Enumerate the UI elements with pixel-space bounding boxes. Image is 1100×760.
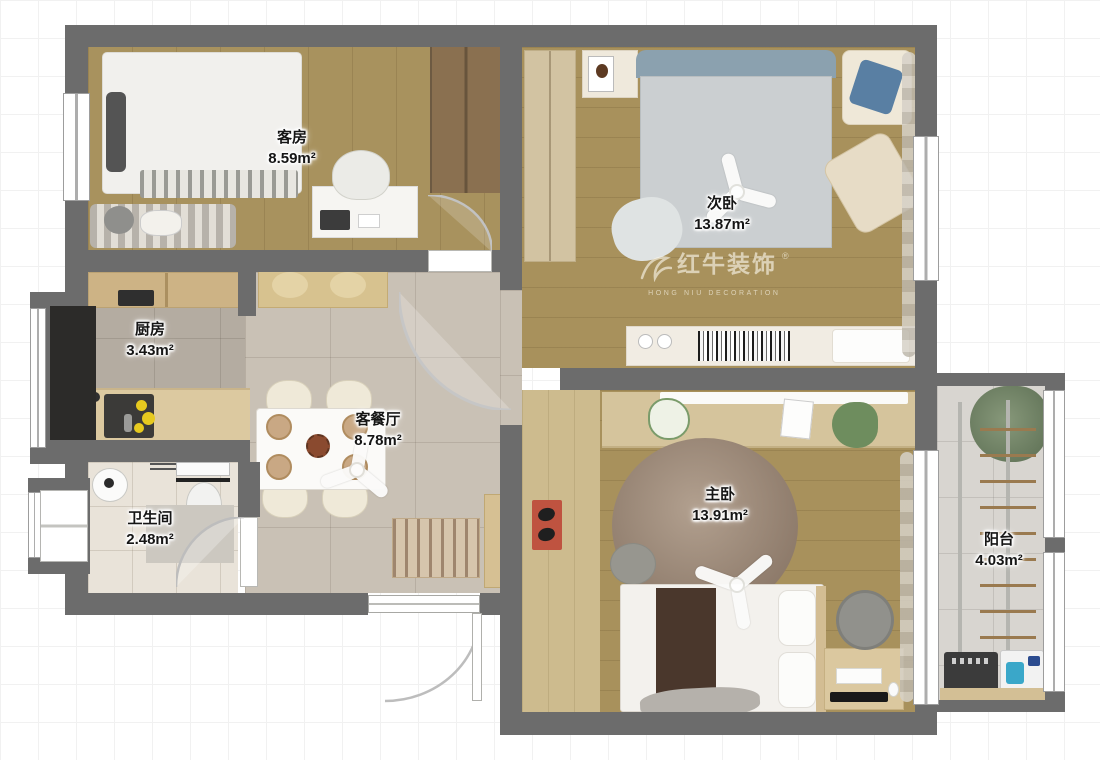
guest-desk-printer	[320, 210, 350, 230]
entrance-door-opening	[368, 595, 480, 613]
washer-laundry-blue	[1006, 662, 1024, 684]
wall-center-lower	[500, 425, 522, 735]
entrance-door-arc	[385, 613, 482, 703]
room-area-living-dining: 8.78m²	[354, 432, 402, 449]
washer-detergent	[1028, 656, 1040, 666]
room-area-balcony: 4.03m²	[975, 552, 1023, 569]
room-label-kitchen: 厨房 3.43m²	[126, 318, 174, 359]
dresser-photo-frame	[780, 399, 814, 440]
washer-controls	[952, 658, 990, 664]
desk-monitor	[830, 692, 888, 702]
sink-flower-1	[136, 400, 147, 411]
room-label-bathroom: 卫生间 2.48m²	[126, 507, 174, 548]
room-label-guest: 客房 8.59m²	[268, 126, 316, 167]
room-name-living-dining: 客餐厅	[355, 408, 400, 429]
master-entry-corridor-floor	[522, 390, 600, 712]
guest-door-arc	[428, 195, 492, 252]
guest-bed-pillow	[106, 92, 126, 172]
room-area-guest: 8.59m²	[268, 150, 316, 167]
room-label-living-dining: 客餐厅 8.78m²	[354, 408, 402, 449]
room-name-master: 主卧	[705, 483, 735, 504]
room-label-second-bedroom: 次卧 13.87m²	[694, 192, 750, 233]
room-name-balcony: 阳台	[984, 528, 1014, 549]
shelf-cup-1	[638, 334, 653, 349]
guest-bench-pillow-white	[140, 210, 182, 236]
entry-rug	[392, 518, 480, 578]
drying-rack-pole-1	[958, 402, 962, 657]
dresser-plant	[832, 402, 878, 448]
registered-mark-icon: ®	[782, 251, 789, 261]
shelf-books	[698, 331, 790, 361]
magazine-photo	[596, 64, 608, 78]
second-bedroom-window	[913, 136, 939, 281]
shelf-tray	[832, 329, 910, 363]
balcony-wall-bottom	[937, 700, 1065, 712]
shelf-cup-2	[657, 334, 672, 349]
sink-flower-3	[134, 423, 144, 433]
room-area-master: 13.91m²	[692, 507, 748, 524]
bathroom-door-arc	[176, 517, 244, 587]
brand-watermark: 红牛装饰 ® HONG NIU DECORATION	[640, 254, 789, 297]
shower-control-icon	[104, 478, 114, 488]
room-name-bathroom: 卫生间	[127, 507, 172, 528]
room-area-second-bedroom: 13.87m²	[694, 216, 750, 233]
guest-rug	[140, 170, 298, 198]
guest-door-opening	[428, 250, 492, 272]
second-bedroom-wardrobe	[524, 50, 576, 262]
wall-guestroom-bottom-right	[492, 250, 522, 272]
brand-name: 红牛装饰	[677, 254, 777, 277]
wall-kitchen-stub	[238, 272, 256, 316]
dresser-flowers	[648, 398, 690, 440]
master-curtain	[900, 452, 914, 702]
sink-flower-2	[142, 412, 155, 425]
sink-faucet	[124, 414, 132, 432]
cabinet-sheen-2	[330, 272, 366, 298]
master-balcony-window	[913, 450, 939, 705]
desk-keyboard	[836, 668, 882, 684]
wall-bottom-left-b	[480, 593, 506, 615]
dining-plate-1	[266, 414, 292, 440]
desk-mouse	[888, 682, 899, 697]
brand-logo-icon	[640, 254, 672, 287]
range-hood	[118, 290, 154, 306]
kitchen-bay-window	[30, 308, 46, 448]
guest-bench-pillow-gray	[104, 206, 134, 234]
kitchen-upper-cabinet	[88, 272, 245, 308]
floorplan-canvas: 客房 8.59m² 次卧 13.87m² 厨房 3.43m² 客餐厅 8.78m…	[0, 0, 1100, 760]
room-label-master: 主卧 13.91m²	[692, 483, 748, 524]
brand-subtitle: HONG NIU DECORATION	[648, 290, 781, 297]
toilet-tank	[176, 462, 230, 476]
room-area-kitchen: 3.43m²	[126, 342, 174, 359]
guest-chair	[332, 150, 390, 200]
balcony-window-upper	[1043, 390, 1065, 538]
master-pillow-1	[778, 590, 816, 646]
master-pillow-2	[778, 652, 816, 708]
ceiling-fan-icon-master	[692, 540, 782, 630]
entrance-door-leaf	[472, 613, 482, 701]
room-name-kitchen: 厨房	[135, 318, 165, 339]
guest-room-window	[63, 93, 90, 201]
room-name-second-bedroom: 次卧	[707, 192, 737, 213]
guest-desk-paper	[358, 214, 380, 228]
hall-door-arc	[399, 292, 511, 410]
room-label-balcony: 阳台 4.03m²	[975, 528, 1023, 569]
cabinet-sheen-1	[272, 272, 308, 298]
wall-bathroom-top	[65, 440, 250, 462]
kitchen-stove-counter-bay	[50, 306, 96, 440]
second-bed-headboard	[636, 50, 836, 78]
balcony-window-lower	[1043, 552, 1065, 692]
dining-plate-3	[266, 454, 292, 480]
wall-bathroom-right	[238, 462, 260, 517]
room-area-bathroom: 2.48m²	[126, 531, 174, 548]
wall-bottom-left-a	[65, 593, 368, 615]
room-name-guest: 客房	[277, 126, 307, 147]
wall-guestroom-bottom-left	[65, 250, 428, 272]
bathroom-bay-panel	[40, 490, 88, 562]
wall-bedroom-divider	[560, 368, 937, 390]
guest-wardrobe	[430, 47, 500, 193]
master-pouf	[610, 543, 656, 585]
master-desk-chair	[836, 590, 894, 650]
wall-bottom-right	[500, 712, 937, 735]
